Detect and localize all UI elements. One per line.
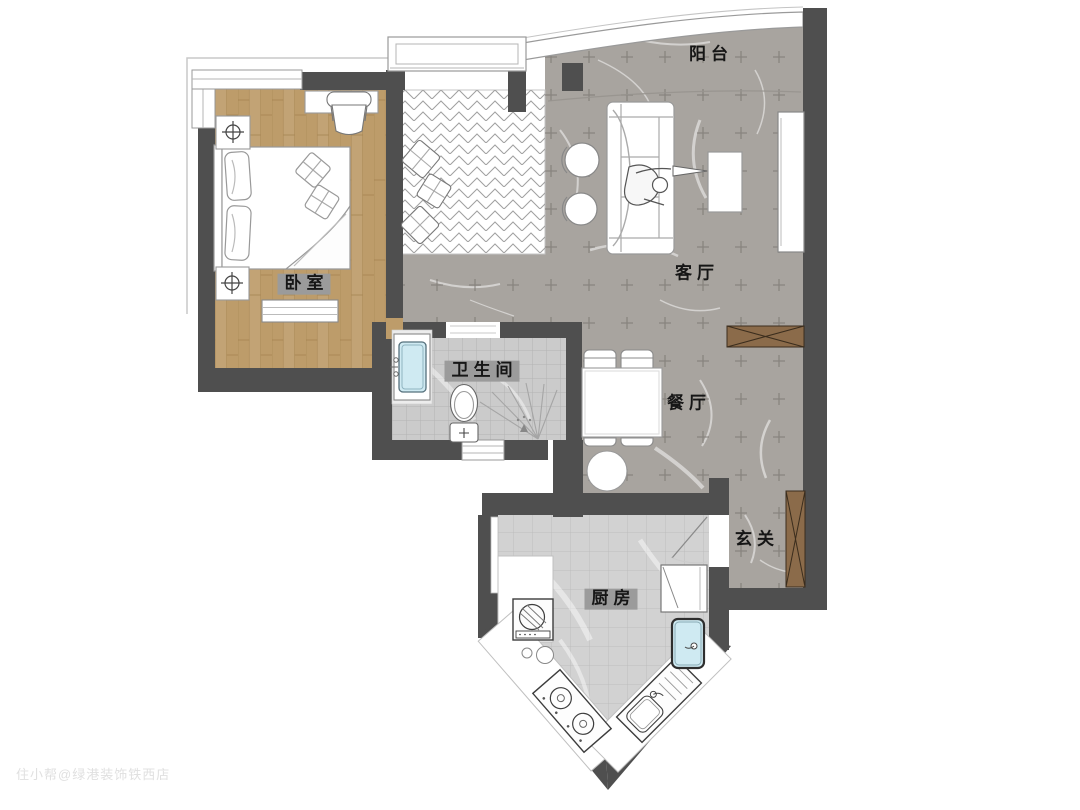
bathroom-vanity xyxy=(390,330,432,404)
room-label-entry: 玄关 xyxy=(735,531,779,550)
round-table xyxy=(587,451,627,491)
entry-shoe-cabinet xyxy=(786,491,805,587)
bedroom-dresser xyxy=(262,300,338,322)
bed xyxy=(214,145,350,271)
room-label-dining: 餐厅 xyxy=(667,395,711,414)
floorplan-canvas xyxy=(0,0,1080,810)
room-label-kitchen: 厨房 xyxy=(585,589,638,610)
room-label-living: 客厅 xyxy=(675,265,719,284)
bay-window xyxy=(388,37,526,71)
room-label-balcony: 阳台 xyxy=(689,46,733,65)
coffee-table xyxy=(708,152,742,212)
utility-sink xyxy=(672,619,704,668)
room-label-bathroom: 卫生间 xyxy=(445,361,520,382)
toilet xyxy=(450,385,478,443)
watermark: 住小帮@绿港装饰铁西店 xyxy=(16,764,170,783)
floorplan-page: 阳台 客厅 卧室 卫生间 餐厅 玄关 厨房 住小帮@绿港装饰铁西店 xyxy=(0,0,1080,810)
bathroom-door-opening xyxy=(446,322,500,338)
microwave-oven xyxy=(513,599,553,640)
bathroom-window xyxy=(462,440,504,460)
tv-cabinet xyxy=(778,112,804,252)
room-label-bedroom: 卧室 xyxy=(278,274,331,295)
kitchen-window xyxy=(491,517,498,593)
fridge xyxy=(661,565,707,612)
console-cabinet xyxy=(727,326,804,347)
